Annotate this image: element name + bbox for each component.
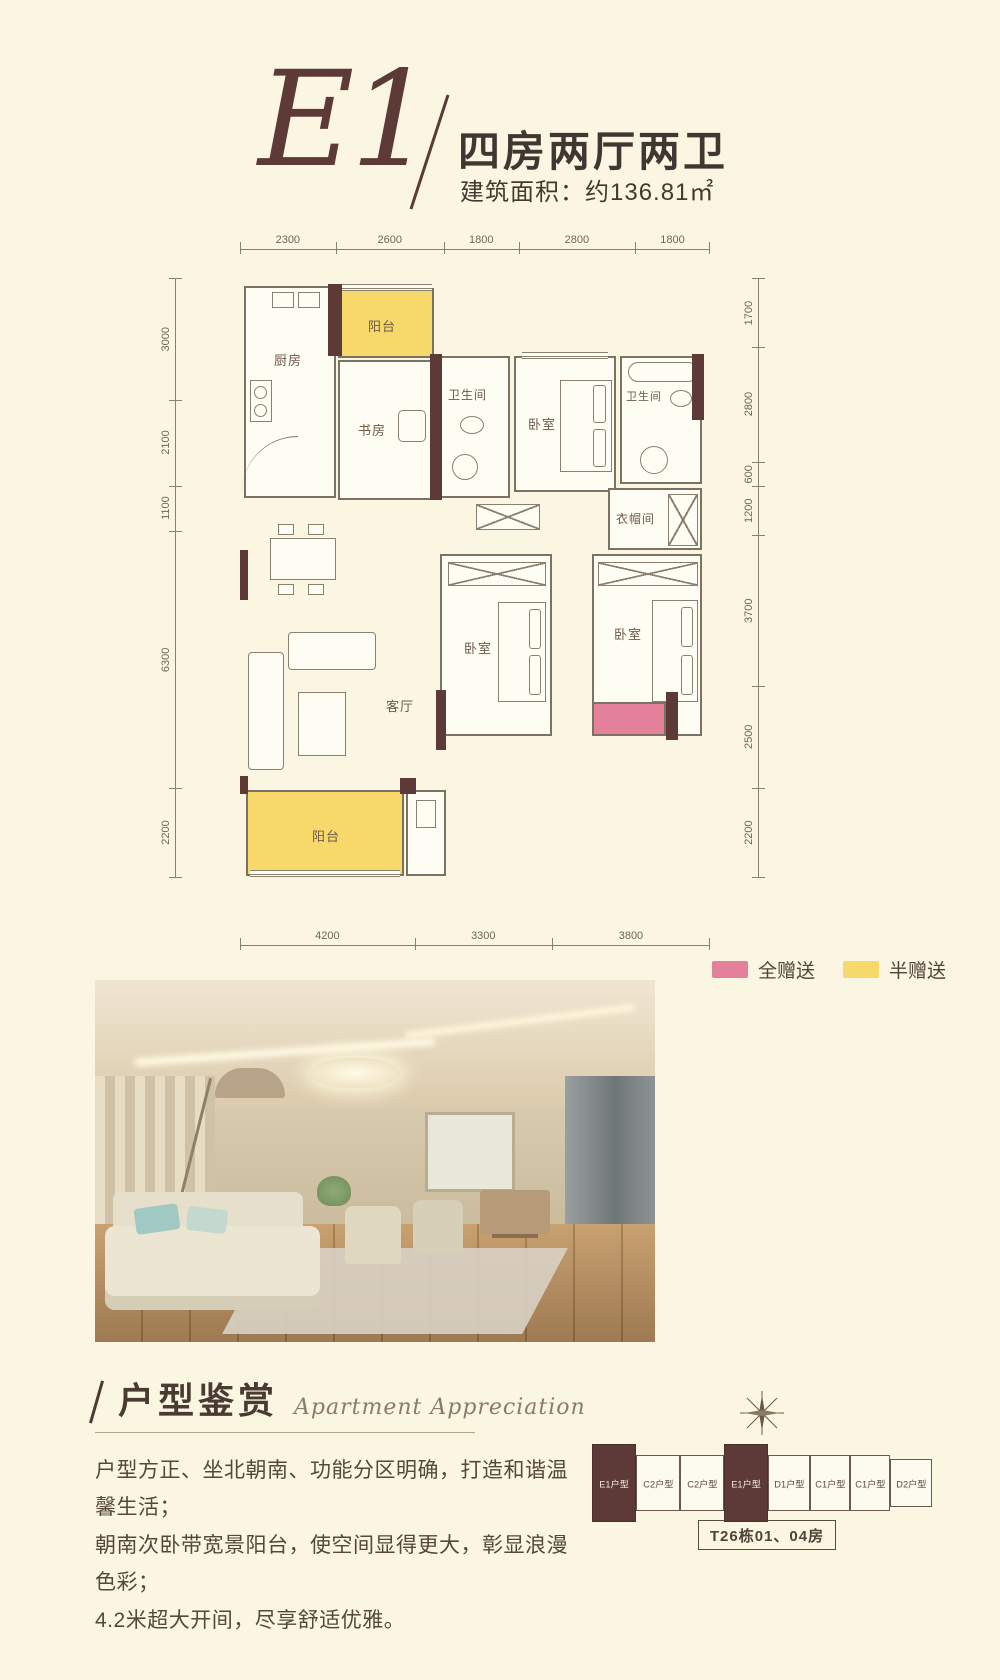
desk-chair-icon — [398, 410, 426, 442]
dim-label: 1700 — [743, 278, 755, 347]
dim-ruler-left: 3000 2100 1100 6300 2200 — [162, 278, 178, 878]
chair-icon — [278, 584, 294, 595]
chandelier — [310, 1058, 400, 1088]
window-icon — [250, 870, 400, 877]
dim-ruler-top: 2300 2600 1800 2800 1800 — [240, 232, 710, 250]
keyplan-unit: C1户型 — [810, 1455, 850, 1511]
keyplan-unit: E1户型 — [724, 1444, 768, 1522]
sofa-icon — [288, 632, 376, 670]
dim-label: 2100 — [160, 400, 172, 486]
legend-item-half-gift: 半赠送 — [843, 956, 946, 983]
divider-line — [95, 1432, 475, 1433]
dim-label: 2300 — [240, 234, 336, 246]
dim-label: 1800 — [635, 234, 710, 246]
water-heater-icon — [416, 800, 436, 828]
half-gift-swatch — [843, 961, 879, 978]
keyplan-unit: D2户型 — [890, 1459, 932, 1507]
dim-label: 1100 — [160, 486, 172, 531]
plan-code: E1 — [258, 48, 430, 193]
flyer-page: E1 四房两厅两卫 建筑面积：约136.81㎡ 2300 2600 1800 2… — [0, 0, 1000, 1680]
legend-label: 半赠送 — [889, 956, 946, 983]
dim-label: 2800 — [743, 347, 755, 461]
floor-plan: 厨房 阳台 书房 卫生间 卧室 — [240, 278, 710, 878]
dim-label: 3800 — [552, 930, 710, 942]
coffee-table-icon — [298, 692, 346, 756]
dim-label: 3700 — [743, 535, 755, 686]
dim-label: 600 — [743, 462, 755, 486]
kitchen-sink-icon — [272, 292, 294, 308]
legend: 全赠送 半赠送 — [712, 956, 946, 983]
dim-label: 2500 — [743, 686, 755, 788]
chair-icon — [308, 524, 324, 535]
keyplan-unit: C2户型 — [636, 1455, 680, 1511]
dim-label: 6300 — [160, 531, 172, 788]
description-line: 4.2米超大开间，尽享舒适优雅。 — [95, 1602, 585, 1639]
room-bedroom-north: 卧室 — [514, 356, 616, 492]
room-balcony-north: 阳台 — [338, 288, 434, 358]
section-title-en: Apartment Appreciation — [294, 1395, 586, 1424]
toilet-icon — [670, 390, 692, 407]
chair-icon — [308, 584, 324, 595]
toilet-icon — [460, 416, 484, 434]
washbasin-icon — [452, 454, 478, 480]
wardrobe-icon — [448, 562, 546, 586]
hall-cabinet-icon — [476, 504, 540, 530]
wardrobe-icon — [598, 562, 698, 586]
chair-icon — [278, 524, 294, 535]
dim-label: 2200 — [160, 788, 172, 878]
bed-icon — [560, 380, 612, 472]
keyplan-unit: C1户型 — [850, 1455, 890, 1511]
building-label: T26栋01、04房 — [698, 1520, 836, 1550]
bed-icon — [652, 600, 698, 702]
room-living: 客厅 — [246, 630, 441, 790]
keyplan-unit: C2户型 — [680, 1455, 724, 1511]
washing-machine-icon — [640, 446, 668, 474]
page-title: 四房两厅两卫 — [458, 118, 728, 179]
sofa — [105, 1226, 320, 1310]
dim-label: 3000 — [160, 278, 172, 400]
full-gift-swatch — [712, 961, 748, 978]
keyplan-unit: D1户型 — [768, 1455, 810, 1511]
gift-full-zone — [592, 702, 666, 736]
dim-label: 1800 — [444, 234, 519, 246]
dim-label: 3300 — [415, 930, 552, 942]
window-icon — [340, 284, 432, 291]
dim-label: 4200 — [240, 930, 415, 942]
dim-ruler-right: 1700 2800 600 1200 3700 2500 2200 — [745, 278, 761, 878]
description-line: 朝南次卧带宽景阳台，使空间显得更大，彰显浪漫色彩； — [95, 1527, 585, 1602]
building-key-plan: E1户型 C2户型 C2户型 E1户型 D1户型 C1户型 C1户型 D2户型 — [592, 1448, 937, 1518]
room-cloakroom: 衣帽间 — [608, 488, 702, 550]
description-text: 户型方正、坐北朝南、功能分区明确，打造和谐温馨生活； 朝南次卧带宽景阳台，使空间… — [95, 1452, 585, 1639]
bed-icon — [498, 602, 546, 702]
room-bathroom-2: 卫生间 — [620, 356, 702, 484]
dim-label: 1200 — [743, 486, 755, 535]
legend-label: 全赠送 — [758, 956, 815, 983]
sofa-icon — [248, 652, 284, 770]
dining-table-icon — [270, 538, 336, 580]
room-bathroom-1: 卫生间 — [438, 356, 510, 498]
dim-label: 2800 — [519, 234, 635, 246]
utility-niche — [406, 790, 446, 876]
burner-icon — [254, 404, 267, 417]
dim-label: 2600 — [336, 234, 444, 246]
legend-item-full-gift: 全赠送 — [712, 956, 815, 983]
description-line: 户型方正、坐北朝南、功能分区明确，打造和谐温馨生活； — [95, 1452, 585, 1527]
room-balcony-south: 阳台 — [246, 790, 404, 876]
section-title-cn: 户型鉴赏 — [118, 1372, 278, 1424]
wardrobe-icon — [668, 494, 698, 546]
interior-photo — [95, 980, 655, 1342]
appreciation-header: 户型鉴赏 Apartment Appreciation — [95, 1372, 586, 1424]
slash-divider — [89, 1380, 104, 1423]
compass-icon — [738, 1385, 786, 1441]
window-icon — [522, 352, 608, 359]
room-study: 书房 — [338, 360, 434, 500]
kitchen-sink-icon — [298, 292, 320, 308]
room-dining: 餐厅 — [246, 502, 376, 630]
bathtub-icon — [628, 362, 698, 382]
room-bedroom-2: 卧室 — [440, 554, 552, 736]
dim-label: 2200 — [743, 788, 755, 878]
keyplan-unit: E1户型 — [592, 1444, 636, 1522]
burner-icon — [254, 386, 267, 399]
area-label: 建筑面积：约136.81㎡ — [460, 172, 714, 207]
dim-ruler-bottom: 4200 3300 3800 — [240, 928, 710, 946]
